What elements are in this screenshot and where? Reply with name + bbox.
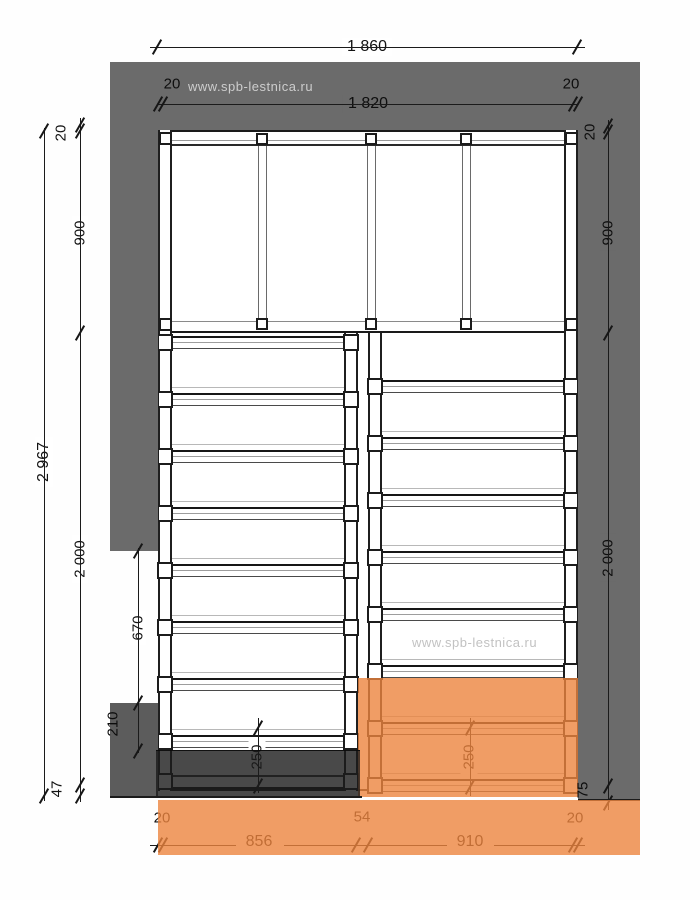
tread: [382, 551, 564, 564]
dim-left-run: 670: [130, 610, 147, 645]
landing-bottom-rim: [158, 321, 578, 333]
dim-tick: [75, 325, 85, 341]
highlight-orange-block-layer: [0, 0, 700, 900]
tread-connector: [343, 676, 359, 693]
dimension-line: [284, 845, 447, 846]
tread-connector: [157, 562, 173, 579]
tread-back-edge: [172, 729, 344, 730]
dim-tick: [603, 118, 613, 134]
dim-tick: [75, 123, 85, 139]
dim-right-bottom-offset: 75: [576, 782, 591, 799]
wall-right: [578, 62, 640, 801]
tread-connector: [367, 435, 383, 452]
joist-connector: [256, 133, 268, 145]
dim-tick: [75, 788, 85, 804]
dim-tick: [133, 695, 143, 711]
dimension-line: [150, 845, 236, 846]
dim-tick: [152, 39, 162, 55]
dim-tick: [363, 837, 373, 853]
dimension-line: [138, 548, 139, 753]
tread-connector: [157, 676, 173, 693]
tread-connector: [157, 448, 173, 465]
dim-tick: [568, 96, 578, 112]
tread-back-edge: [172, 444, 344, 445]
tread-connector: [367, 378, 383, 395]
corner-connector: [159, 318, 172, 331]
dim-bottom-right-flight-width: 910: [457, 834, 484, 850]
dim-tick: [603, 778, 613, 794]
tread-connector: [157, 334, 173, 351]
tread-back-edge: [382, 431, 564, 432]
tread: [172, 564, 344, 577]
dim-tick: [133, 743, 143, 759]
dim-tick: [603, 325, 613, 341]
dim-tick: [572, 39, 582, 55]
walls-layer: [0, 0, 700, 900]
wall-left: [110, 62, 158, 551]
tread: [172, 336, 344, 349]
tread-connector: [367, 549, 383, 566]
dimension-line: [80, 118, 81, 802]
tread-connector: [563, 720, 579, 737]
flight-bottom-rim: [172, 775, 344, 789]
tread-connector: [367, 720, 383, 737]
stringer: [368, 333, 382, 791]
joist-connector: [460, 318, 472, 330]
tread: [172, 393, 344, 406]
dim-tick: [158, 96, 168, 112]
tread-connector: [157, 391, 173, 408]
corner-connector: [565, 132, 578, 145]
stairs-linework-layer: [0, 0, 700, 900]
dim-tick: [573, 96, 583, 112]
dim-tick: [75, 117, 85, 133]
stringer: [564, 130, 578, 791]
tread-connector: [343, 619, 359, 636]
dim-tick: [158, 837, 168, 853]
tread: [382, 608, 564, 621]
dim-top-left-offset: 20: [164, 77, 181, 92]
tread-connector: [563, 492, 579, 509]
wall-block-bottom-left: [110, 703, 158, 798]
bottom-dimensions-layer: 20 856 54 910 20: [0, 0, 700, 900]
orange-highlight-bottom: [158, 800, 640, 855]
watermarks-layer: www.spb-lestnica.ru www.spb-lestnica.ru: [0, 0, 700, 900]
joist-connector: [365, 318, 377, 330]
tread-back-edge: [172, 387, 344, 388]
tread-back-edge: [172, 672, 344, 673]
stringer: [158, 130, 172, 791]
dim-right-flight-length: 2 000: [600, 534, 617, 582]
tread-back-edge: [172, 558, 344, 559]
dim-left-block-height: 210: [106, 711, 121, 736]
dim-tick: [603, 795, 613, 811]
tread-back-edge: [382, 488, 564, 489]
joist-connector: [256, 318, 268, 330]
stringer: [344, 333, 358, 791]
dim-tick: [603, 124, 613, 140]
tread-connector: [343, 391, 359, 408]
tread-connector: [563, 549, 579, 566]
tread-connector: [157, 505, 173, 522]
tread: [172, 735, 344, 748]
joist-connector: [460, 133, 472, 145]
dark-highlight-left: [156, 750, 360, 798]
landing-joist: [462, 146, 471, 321]
highlight-orange-band-layer: [0, 0, 700, 900]
tread-connector: [157, 619, 173, 636]
dim-tick: [75, 777, 85, 793]
dimension-line: [608, 120, 609, 810]
tread-connector: [563, 378, 579, 395]
dim-tick: [465, 720, 475, 736]
tread-connector: [343, 562, 359, 579]
tread-back-edge: [382, 545, 564, 546]
tread: [172, 678, 344, 691]
dim-right-top-offset: 20: [583, 124, 598, 141]
tread-connector: [563, 606, 579, 623]
tread-back-edge: [382, 602, 564, 603]
orange-highlight-right: [358, 678, 638, 797]
tread-connector: [367, 777, 383, 794]
tread: [382, 437, 564, 450]
dim-left-top-offset: 20: [54, 125, 69, 142]
dim-tick: [153, 96, 163, 112]
dim-tick: [351, 837, 361, 853]
dim-inner-width: 1 820: [343, 95, 393, 113]
dimension-line: [158, 104, 578, 105]
tread: [382, 494, 564, 507]
tread-connector: [343, 334, 359, 351]
dim-tick: [568, 837, 578, 853]
stair-frame-outline: [158, 130, 578, 791]
watermark-top: www.spb-lestnica.ru: [188, 79, 313, 94]
dim-top-right-offset: 20: [563, 77, 580, 92]
tread-connector: [157, 773, 173, 790]
tread: [172, 450, 344, 463]
dim-tread-depth-left: 250: [249, 739, 266, 774]
tread-connector: [367, 606, 383, 623]
highlight-dark-band-layer: [0, 0, 700, 900]
dim-right-landing-depth: 900: [600, 215, 617, 250]
tread: [382, 665, 564, 678]
tread-connector: [563, 435, 579, 452]
dim-tick: [39, 123, 49, 139]
dimension-line: [44, 128, 45, 801]
tread: [382, 380, 564, 393]
staircase-plan-drawing: 250 250 1 860 1 820 20 20 2 967 20 900 2…: [0, 0, 700, 900]
dim-left-flight-length: 2 000: [72, 535, 89, 583]
corner-connector: [159, 132, 172, 145]
tread-connector: [563, 777, 579, 794]
dim-tick: [39, 788, 49, 804]
dim-total-width: 1 860: [342, 38, 392, 56]
dim-bottom-left-offset: 20: [154, 811, 171, 826]
dimensions-layer: 1 860 1 820 20 20 2 967 20 900 2 000 47 …: [0, 0, 700, 900]
dim-bottom-left-flight-width: 856: [246, 834, 273, 850]
landing-joist: [367, 146, 376, 321]
tread-back-edge: [382, 659, 564, 660]
dim-bottom-gap: 54: [354, 810, 371, 825]
tread: [172, 621, 344, 634]
tread: [382, 779, 564, 792]
tread-connector: [343, 505, 359, 522]
dim-tick: [465, 779, 475, 795]
tread-back-edge: [172, 501, 344, 502]
tread-connector: [343, 773, 359, 790]
dim-tick: [253, 778, 263, 794]
dimension-line: [494, 845, 585, 846]
dim-left-landing-depth: 900: [72, 215, 89, 250]
landing-top-rim: [158, 130, 578, 146]
tread-back-edge: [382, 716, 564, 717]
dimension-line: [470, 718, 471, 796]
tread-connector: [563, 663, 579, 680]
landing-joist: [258, 146, 267, 321]
dimension-line: [150, 47, 585, 48]
dim-tick: [253, 720, 263, 736]
tread-connector: [343, 733, 359, 750]
dim-bottom-right-offset: 20: [567, 811, 584, 826]
dim-left-bottom-offset: 47: [50, 781, 65, 798]
watermark-middle: www.spb-lestnica.ru: [412, 635, 537, 650]
tread: [172, 507, 344, 520]
tread-connector: [367, 663, 383, 680]
dim-tick: [573, 837, 583, 853]
wall-top: [110, 62, 640, 130]
tread-back-edge: [382, 773, 564, 774]
tread-dimensions-layer: 250 250: [0, 0, 700, 900]
dim-tread-depth-right: 250: [461, 739, 478, 774]
joist-connector: [365, 133, 377, 145]
dimension-line: [578, 799, 640, 801]
dimension-line: [258, 718, 259, 793]
dim-tick: [133, 543, 143, 559]
tread-back-edge: [172, 615, 344, 616]
corner-connector: [565, 318, 578, 331]
dim-tick: [153, 837, 163, 853]
tread-connector: [343, 448, 359, 465]
tread-connector: [367, 492, 383, 509]
dim-total-height: 2 967: [35, 437, 53, 487]
tread-connector: [157, 733, 173, 750]
dimension-line: [110, 796, 362, 798]
tread: [382, 722, 564, 735]
